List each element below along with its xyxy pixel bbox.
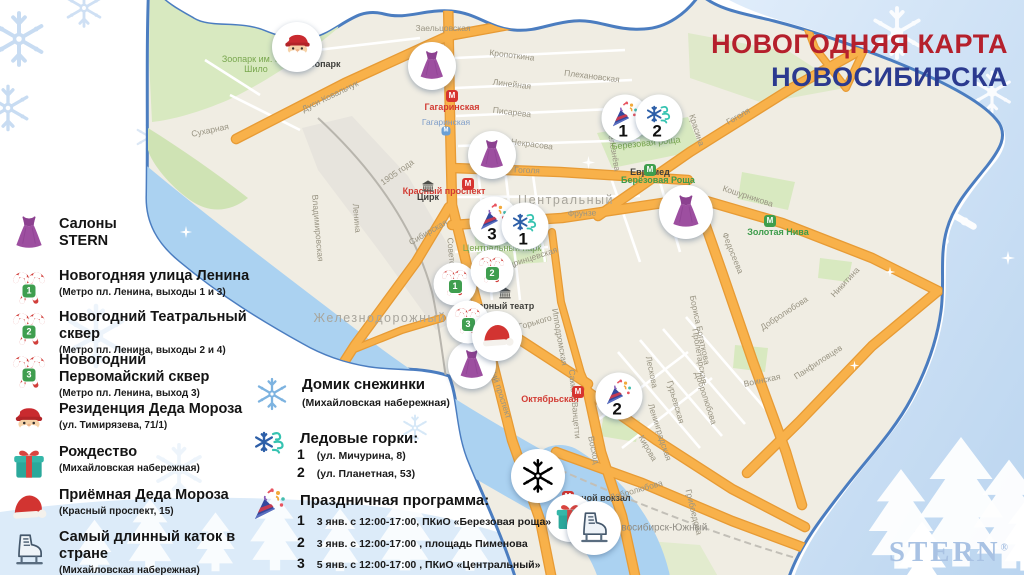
legend-subtitle: (ул. Тимирязева, 71/1) xyxy=(59,420,242,431)
legend-title: Первомайский сквер xyxy=(59,369,209,386)
legend-title: Рождество xyxy=(59,444,200,461)
legend-title: Новогодний Театральный сквер xyxy=(59,309,276,343)
program-entry: 3 5 янв. с 12:00-17:00 , ПКиО «Центральн… xyxy=(297,555,540,571)
snowflake-icon xyxy=(252,374,292,414)
ice-slides-icon xyxy=(250,422,290,462)
legend-subtitle: (Метро пл. Ленина, выходы 1 и 3) xyxy=(59,287,249,298)
program-entry: 1 3 янв. с 12:00-17:00, ПКиО «Березовая … xyxy=(297,512,551,528)
legend-title: Праздничная программа: xyxy=(300,492,489,510)
legend-title: Домик снежинки xyxy=(302,376,450,394)
legend-item-salons: Салоны STERN xyxy=(8,212,276,254)
poster-title: НОВОГОДНЯЯ КАРТА НОВОСИБИРСКА xyxy=(711,28,1008,94)
candy-number-badge: 3 xyxy=(21,368,36,383)
gift-icon xyxy=(8,444,50,486)
candy-canes-icon: 3 xyxy=(8,352,50,394)
registered-mark: ® xyxy=(1001,542,1008,553)
legend-item-lenina-street: 1 Новогодняя улица Ленина (Метро пл. Лен… xyxy=(8,268,276,310)
new-year-map-poster: ЗаельцовскаяЗоопарк им. Р.А. ШилоЗоопарк… xyxy=(0,0,1024,575)
santa-icon xyxy=(8,401,50,443)
legend-item-ded-moroz-residence: Резиденция Деда Мороза (ул. Тимирязева, … xyxy=(8,401,276,443)
legend-title: Приёмная Деда Мороза xyxy=(59,487,229,504)
legend-title: Самый длинный каток в стране xyxy=(59,529,276,563)
legend-item-ded-moroz-office: Приёмная Деда Мороза (Красный проспект, … xyxy=(8,487,276,529)
legend-subtitle: (Михайловская набережная) xyxy=(59,565,276,575)
legend-item-pervomaisky-square: 3 Новогодний Первомайский сквер (Метро п… xyxy=(8,352,276,399)
ice-skate-icon xyxy=(8,529,50,571)
dress-icon xyxy=(8,212,50,254)
ice-slide-entry: 1 (ул. Мичурина, 8) xyxy=(297,446,406,462)
candy-number-badge: 1 xyxy=(21,284,36,299)
poster-title-line2: НОВОСИБИРСКА xyxy=(711,61,1008,94)
legend-title: Резиденция Деда Мороза xyxy=(59,401,242,418)
poster-title-line1: НОВОГОДНЯЯ КАРТА xyxy=(711,28,1008,61)
legend-item-theater-square: 2 Новогодний Театральный сквер (Метро пл… xyxy=(8,309,276,356)
legend-subtitle: (Метро пл. Ленина, выход 3) xyxy=(59,388,209,399)
legend-item-longest-rink: Самый длинный каток в стране (Михайловск… xyxy=(8,529,276,575)
legend-subtitle: (Красный проспект, 15) xyxy=(59,506,229,517)
legend-subtitle: (Михайловская набережная) xyxy=(302,397,450,409)
program-entry: 2 3 янв. с 12:00-17:00 , площадь Пименов… xyxy=(297,534,528,550)
party-popper-icon xyxy=(250,484,290,524)
legend-title: STERN xyxy=(59,233,117,250)
candy-number-badge: 2 xyxy=(21,325,36,340)
santa-hat-icon xyxy=(8,487,50,529)
stern-logo: STERN® xyxy=(889,536,1008,569)
legend-item-christmas: Рождество (Михайловская набережная) xyxy=(8,444,276,486)
legend-title: Новогодняя улица Ленина xyxy=(59,268,249,285)
legend-title: Новогодний xyxy=(59,352,209,369)
candy-canes-icon: 1 xyxy=(8,268,50,310)
legend-subtitle: (Михайловская набережная) xyxy=(59,463,200,474)
candy-canes-icon: 2 xyxy=(8,309,50,351)
ice-slide-entry: 2 (ул. Планетная, 53) xyxy=(297,464,415,480)
legend-title: Салоны xyxy=(59,216,117,233)
legend-item-snowflake-house: Домик снежинки (Михайловская набережная) xyxy=(252,374,450,414)
